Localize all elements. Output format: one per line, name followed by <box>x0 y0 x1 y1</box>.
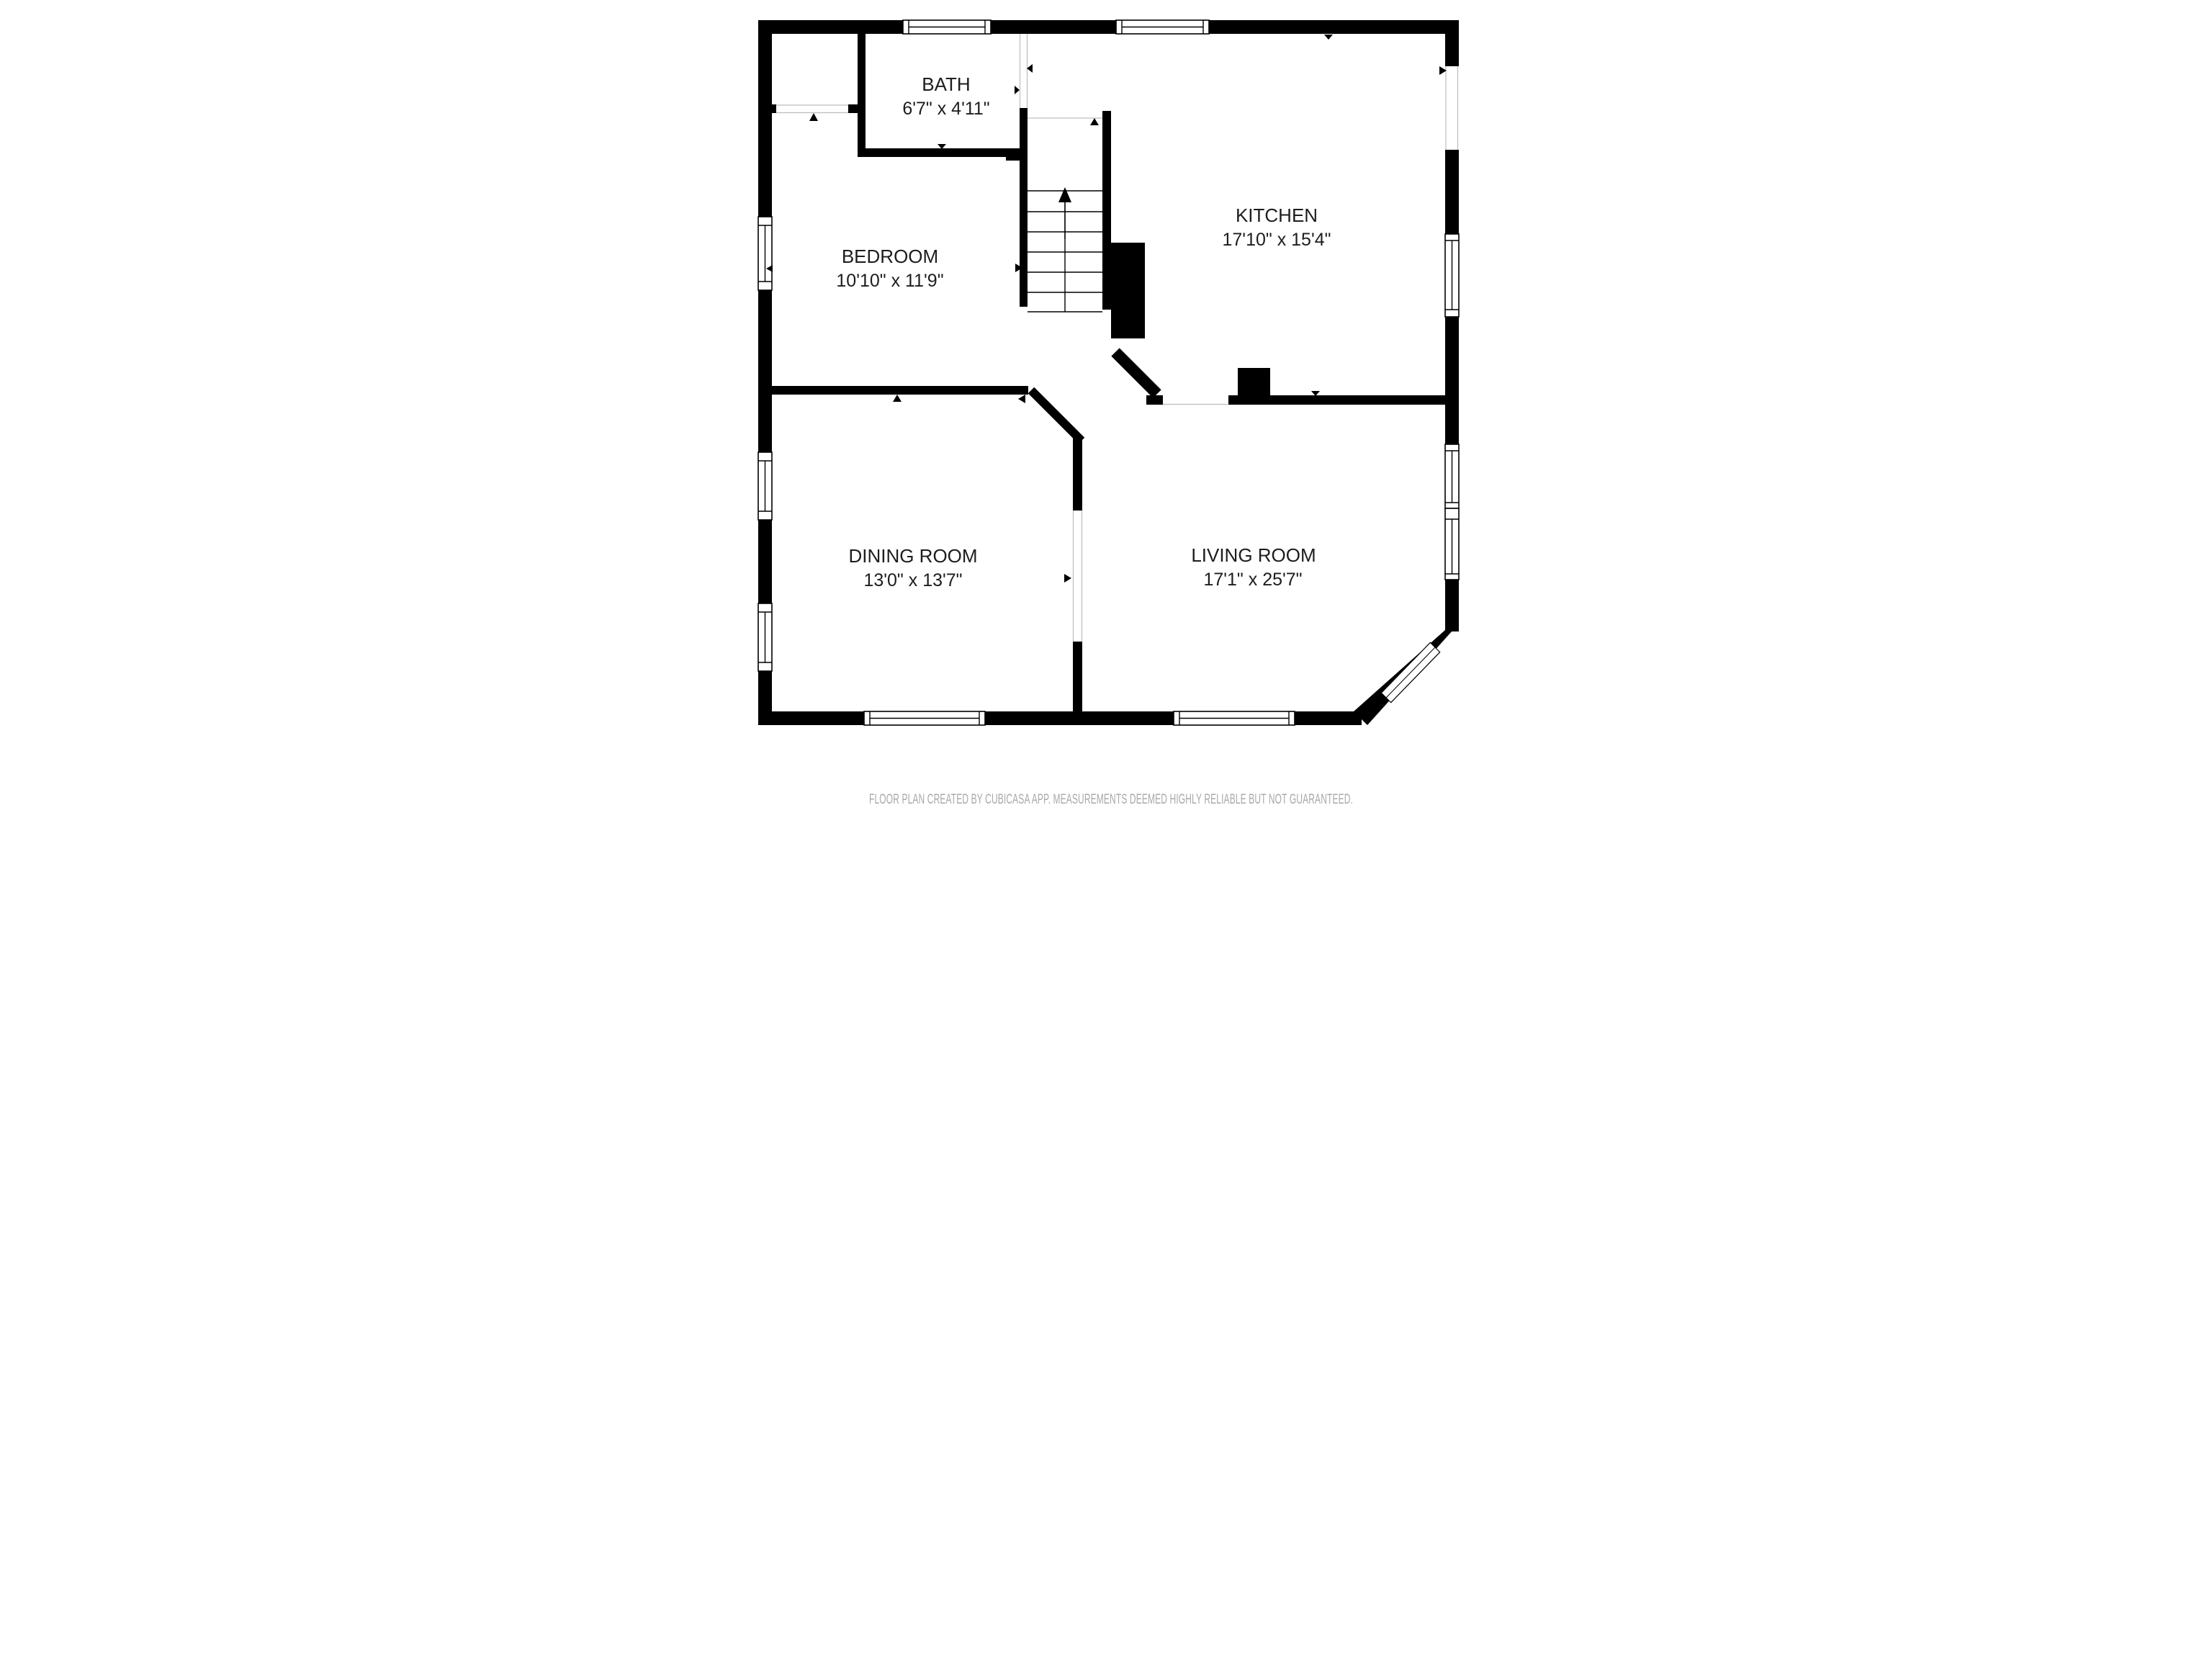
window-living-right-upper <box>1445 444 1459 508</box>
kitchen-top-arrow-down-icon <box>1324 35 1333 40</box>
closet-arrow-up-icon <box>809 113 818 121</box>
kitchen-counter-block <box>1238 368 1270 395</box>
floor-plan-page: BATH 6'7" x 4'11" BEDROOM 10'10" x 11'9"… <box>553 0 1659 829</box>
entry-door-right <box>1445 66 1459 150</box>
wall-dining-living-lower <box>1073 642 1082 711</box>
bedroom-label: BEDROOM <box>842 246 938 267</box>
bath-door-arrow-left-icon <box>1027 64 1033 73</box>
kitchen-dims: 17'10" x 15'4" <box>1222 230 1331 250</box>
window-kitchen-right <box>1445 234 1459 317</box>
living-dims: 17'1" x 25'7" <box>1203 570 1302 590</box>
wall-dining-diagonal <box>1031 390 1082 441</box>
floor-plan: BATH 6'7" x 4'11" BEDROOM 10'10" x 11'9"… <box>553 0 1659 829</box>
chimney-block <box>1111 243 1145 338</box>
wall-bath-right <box>1020 108 1028 307</box>
wall-top <box>758 20 1459 34</box>
footer-disclaimer: FLOOR PLAN CREATED BY CUBICASA APP. MEAS… <box>869 792 1353 807</box>
dining-living-arrow-right-icon <box>1064 574 1071 583</box>
wall-bedroom-dining <box>766 386 1028 395</box>
kitchen-wall-arrow-down-icon <box>1311 391 1320 396</box>
wall-closet-right <box>858 34 866 157</box>
window-bath-top <box>903 20 991 34</box>
bath-door-arrow-right-icon <box>1015 86 1020 94</box>
living-label: LIVING ROOM <box>1191 544 1316 566</box>
wall-stair-right <box>1102 111 1111 310</box>
wall-closet-stub-left <box>766 104 776 113</box>
dining-dims: 13'0" x 13'7" <box>863 570 962 590</box>
window-bedroom-left <box>758 217 772 290</box>
closet-opening <box>776 105 848 113</box>
bedroom-dining-arrow-left-icon <box>1018 395 1025 403</box>
wall-kitchen-door-stub <box>1146 395 1163 405</box>
dining-living-opening <box>1074 511 1082 642</box>
window-living-bottom <box>1174 711 1295 725</box>
wall-kitchen-diagonal <box>1115 352 1157 394</box>
bath-wall-arrow-down-icon <box>938 144 946 149</box>
wall-bath-bottom <box>858 148 1020 157</box>
window-kitchen-top <box>1116 20 1209 34</box>
bedroom-dining-arrow-up-icon <box>893 395 902 402</box>
wall-closet-stub-right <box>848 104 858 113</box>
bath-label: BATH <box>922 73 970 95</box>
staircase <box>1028 118 1102 312</box>
bedroom-dims: 10'10" x 11'9" <box>836 271 943 291</box>
hall-stairs-arrow-up-icon <box>1090 118 1099 125</box>
window-dining-left-lower <box>758 603 772 671</box>
wall-kitchen-bottom <box>1228 395 1458 405</box>
wall-dining-living-upper <box>1073 436 1082 511</box>
bath-doorway <box>1020 34 1028 108</box>
kitchen-label: KITCHEN <box>1236 204 1318 226</box>
window-diagonal-corner <box>1381 642 1439 702</box>
stair-up-arrow-icon <box>1058 187 1071 202</box>
wall-bath-corner-step <box>1006 148 1020 161</box>
dining-label: DINING ROOM <box>848 545 977 567</box>
window-living-right-lower <box>1445 508 1459 580</box>
window-dining-left-upper <box>758 452 772 520</box>
walls <box>758 20 1459 725</box>
bath-dims: 6'7" x 4'11" <box>902 99 989 119</box>
window-dining-bottom <box>864 711 985 725</box>
